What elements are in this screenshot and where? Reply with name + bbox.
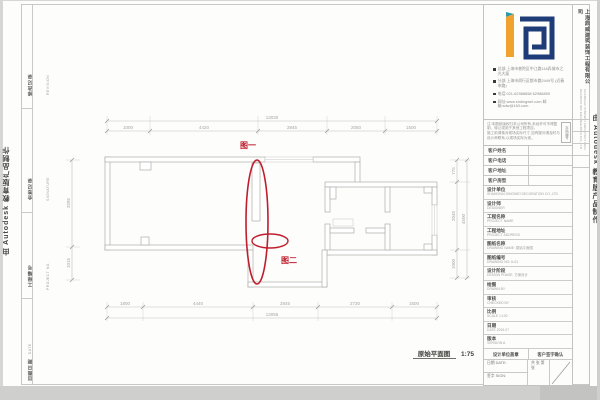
dim-bottom-4: 2730 [350,301,361,306]
contact-item: 总部:上海市普陀区中江路118弄城市之光大厦 [493,67,567,76]
info-row: 版本VERSION A [484,335,572,349]
wall-highlighted [252,163,260,221]
customer-row-label: 客户房型 [488,178,506,184]
dimension-ticks [70,119,469,320]
bullet-icon [493,68,496,71]
info-rows: 设计单位SHANGHAI DINGWEI DECORATION CO.,LTD … [484,186,572,349]
bottom-right-shadow [540,386,600,400]
info-row-sub: DESIGN PHASE: 方案设计 [487,273,572,277]
wall-corridor-right [322,250,327,287]
info-row-sub: DRAWN BY [487,287,572,291]
dim-bottom-2: 4440 [193,301,204,306]
archive-tag: 存档编号 [561,122,571,143]
dim-top-1: 1000 [123,125,134,130]
info-row-sub: CHECKED BY [487,301,572,305]
cell-divider [528,156,529,165]
wall-bath-bottom-right [366,228,385,233]
contact-text: 分部:上海市闵行区都市路2449号 (近春申路) [498,79,567,88]
stamp-body: 日期 DATE: 签字 SIGN: 共 张 第 张 [484,360,572,386]
plan-title: 原始平面图 [418,349,451,358]
wall-top-left [105,157,265,162]
column-divider [573,119,589,120]
stamp-sign-cell: 签字 SIGN: [484,373,528,386]
cell-divider [528,166,529,175]
bottom-margin [0,386,600,400]
figure1-label: 图一 [240,141,256,150]
info-row: 工程地址PROJECT ADDRESS [484,227,572,241]
contact-text: 网址:www.shdingwei.com 邮箱:sdw@163.com [498,100,567,109]
info-row-sub: SCALE 1:100 [487,314,572,318]
info-row: 审核CHECKED BY [484,295,572,309]
customer-row: 客户电话 [484,156,572,166]
info-row-sub: PROJECT NAME [487,219,572,223]
info-row: 设计阶段DESIGN PHASE: 方案设计 [484,267,572,281]
wall-rblock-bottom [327,250,437,255]
diagonal-line [552,362,570,384]
wall-divider-lower [385,224,390,250]
dim-bottom-1: 1800 [120,301,131,306]
wall-top-right [313,157,360,162]
info-row-sub: SHANGHAI DINGWEI DECORATION CO.,LTD [487,192,572,196]
info-row: 日期DATE 2015.07 [484,322,572,336]
dim-left-1: 3285 [66,197,71,208]
fixture-vanity [333,219,353,226]
contact-list: 总部:上海市普陀区中江路118弄城市之光大厦 分部:上海市闵行区都市路2449号… [493,67,567,112]
stamp-diagonal-cell [550,360,572,386]
dim-right-2: 2045 [451,210,456,221]
customer-row-label: 客户地址 [488,168,506,174]
dim-top-4: 2050 [351,125,362,130]
stamp-headers: 设计单位盖章 客户签字确认 [484,349,572,360]
company-name-cn: 上海鼎威建筑装饰工程有限公司 [577,9,591,87]
stamp-pages-cell: 共 张 第 张 [528,360,550,386]
windows [265,157,437,235]
info-row: 绘图DRAWN BY [484,281,572,295]
window-mullions [265,160,435,236]
info-row: 图纸编号DRAWING NO: A-01 [484,254,572,268]
dim-bottom-3: 2845 [280,301,291,306]
logo-navy-spiral [520,19,552,57]
dim-right-total: 4500 [461,213,466,224]
stamp-section: 设计单位盖章 客户签字确认 日期 DATE: 签字 SIGN: 共 张 第 张 [484,349,572,386]
company-name-en: SHANGHAI DINGWEI ARCHITECTURAL DECORATIO… [579,89,587,161]
bullet-icon [493,80,496,83]
notice-paragraph: 注:本图纸版权归本公司所有,未经许可不得复制、转让或用于其他工程项目。 [487,122,562,130]
wall-bath-bottom-left [330,228,354,233]
wall-pier [140,162,151,170]
dim-right-1: 775 [451,167,456,175]
wall-left [105,157,110,250]
wall-pier [424,187,432,193]
info-row-sub: DRAWING NO: A-01 [487,260,572,264]
info-row: 比例SCALE 1:100 [484,308,572,322]
info-row: 设计师DESIGNER [484,200,572,214]
notice-paragraph: 施工前请核对现场实际尺寸,如有疑问请及时与设计师联系,以现场实际为准。 [487,131,562,139]
company-logo [498,11,560,65]
wall-rblock-top [325,182,437,187]
customer-row: 客户姓名 [484,146,572,156]
wall-rblock-left-upper [325,187,330,212]
wall-pier [330,187,336,199]
contact-item: 电话:021-62988858 62988859 [493,92,567,97]
info-row: 工程名称PROJECT NAME [484,213,572,227]
info-row-sub: DRAWING NAME: 原始平面图 [487,246,572,250]
contact-text: 电话:021-62988858 62988859 [498,92,550,97]
cell-divider [528,176,529,185]
dim-right-3: 1000 [451,258,456,269]
dim-top-5: 1500 [406,125,417,130]
dim-top-2: 4420 [199,125,210,130]
customer-row-label: 客户姓名 [488,148,506,154]
dim-left-2: 1015 [66,257,71,268]
logo-orange-bar [506,14,514,57]
title-block: 总部:上海市普陀区中江路118弄城市之光大厦 分部:上海市闵行区都市路2449号… [483,4,573,386]
info-row-sub: DATE 2015.07 [487,328,572,332]
figure2-label: 图二 [281,256,297,265]
info-row-sub: DESIGNER [487,206,572,210]
contact-item: 网址:www.shdingwei.com 邮箱:sdw@163.com [493,100,567,109]
stamp-date-cell: 日期 DATE: [484,360,528,373]
wall-divider-upper [385,187,390,212]
cell-divider [528,146,529,155]
dim-top-3: 2845 [287,125,298,130]
dim-bottom-5: 1500 [409,301,420,306]
wall-pier [141,237,149,245]
wall-rblock-right-upper [432,187,437,205]
contact-item: 分部:上海市闵行区都市路2449号 (近春申路) [493,79,567,88]
info-row-sub: PROJECT ADDRESS [487,233,572,237]
dim-top-total: 13030 [266,115,279,120]
stamp-header-right: 客户签字确认 [529,349,573,359]
column-divider [573,155,589,156]
info-row: 图纸名称DRAWING NAME: 原始平面图 [484,240,572,254]
plan-scale: 1:75 [461,351,474,358]
bullet-icon [493,93,496,96]
customer-row: 客户房型 [484,176,572,186]
notice-cell: 注:本图纸版权归本公司所有,未经许可不得复制、转让或用于其他工程项目。 施工前请… [484,119,572,146]
column-divider [573,143,589,144]
column-divider [573,167,589,168]
info-row-sub: VERSION A [487,341,572,345]
walls [105,157,437,287]
bullet-icon [493,101,496,104]
wall-bottom-left [105,245,253,250]
wall-connector [355,162,360,183]
red-ellipse-horizontal [252,234,288,248]
column-divider [573,131,589,132]
stamp-header-left: 设计单位盖章 [484,349,529,359]
wall-pier [424,244,432,250]
contact-text: 总部:上海市普陀区中江路118弄城市之光大厦 [498,67,567,76]
customer-row: 客户地址 [484,166,572,176]
customer-row-label: 客户电话 [488,158,506,164]
dim-bottom-total: 13055 [266,312,279,317]
company-column: 上海鼎威建筑装饰工程有限公司 SHANGHAI DINGWEI ARCHITEC… [573,4,590,386]
customer-rows: 客户姓名 客户电话 客户地址 客户房型 [484,146,572,186]
info-row: 设计单位SHANGHAI DINGWEI DECORATION CO.,LTD [484,186,572,200]
dimension-lines [72,121,467,318]
cad-sheet-screenshot: 由 Autodesk 教育版产品制作 由 Autodesk 教育版产品制作 修改… [0,0,600,400]
